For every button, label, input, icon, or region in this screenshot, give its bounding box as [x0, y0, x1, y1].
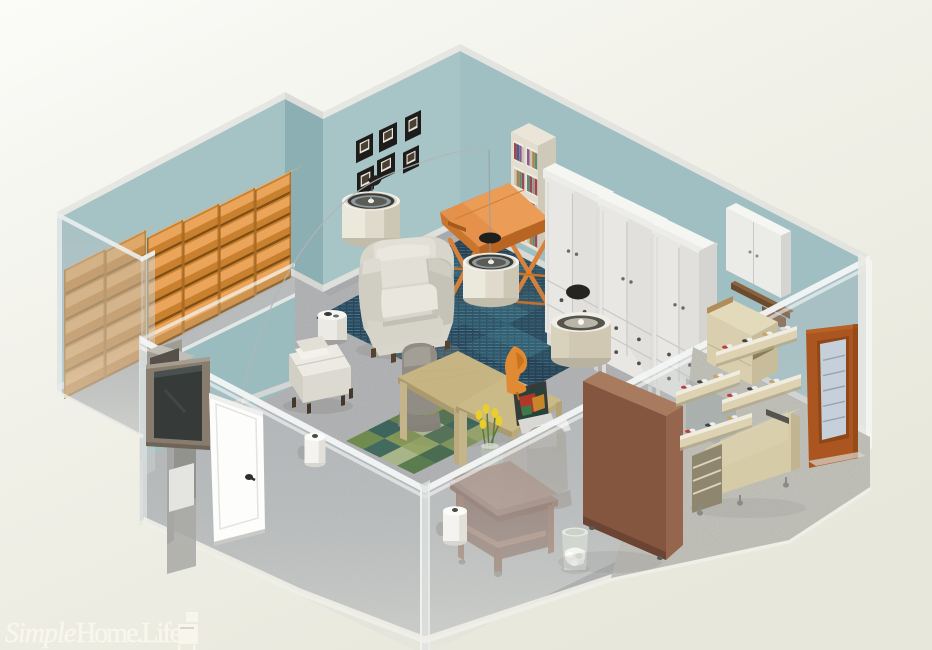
svg-text:Home.Life: Home.Life — [76, 618, 182, 649]
svg-text:Simple: Simple — [5, 618, 76, 649]
